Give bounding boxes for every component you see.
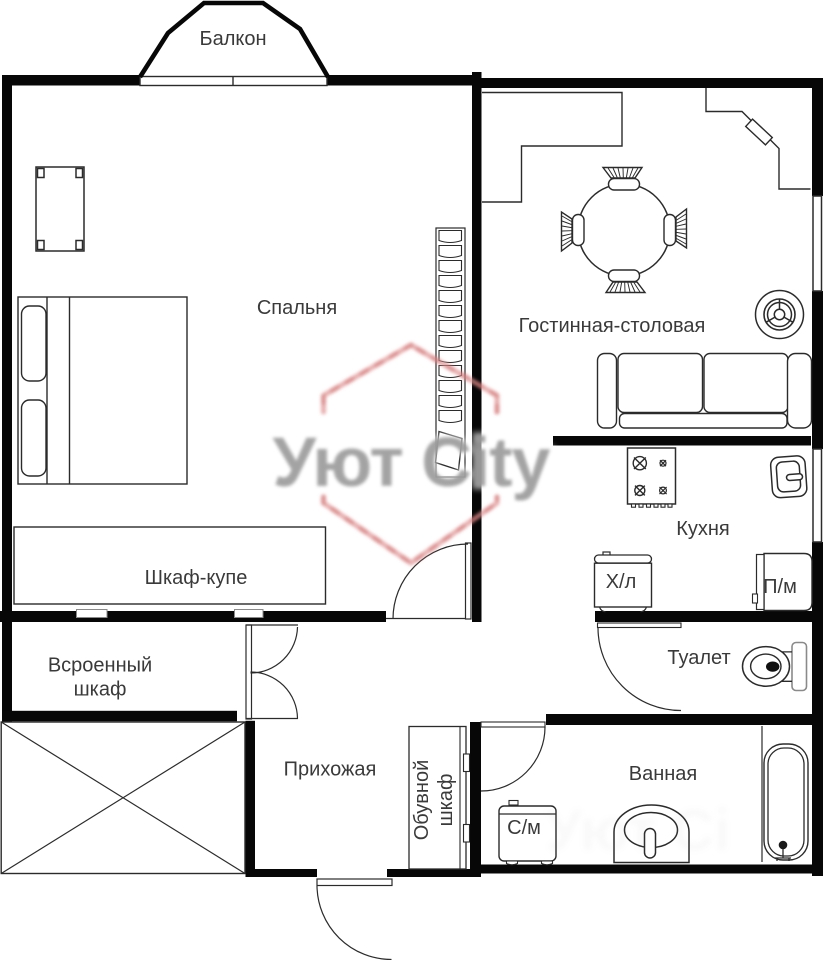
- svg-text:С/м: С/м: [507, 817, 541, 839]
- svg-text:Спальня: Спальня: [257, 297, 337, 319]
- svg-text:Обувной: Обувной: [411, 760, 433, 841]
- svg-text:шкаф: шкаф: [435, 774, 457, 827]
- svg-text:Кухня: Кухня: [676, 518, 730, 540]
- svg-text:Прихожая: Прихожая: [284, 759, 377, 781]
- svg-text:Уют Ci: Уют Ci: [546, 798, 730, 863]
- svg-text:Балкон: Балкон: [199, 28, 266, 50]
- svg-text:Туалет: Туалет: [667, 647, 730, 669]
- svg-text:Х/л: Х/л: [606, 571, 637, 593]
- svg-text:Гостинная-столовая: Гостинная-столовая: [519, 315, 706, 337]
- svg-text:Уют City: Уют City: [273, 423, 551, 501]
- svg-text:Ванная: Ванная: [629, 763, 698, 785]
- svg-text:Всроенный: Всроенный: [48, 655, 152, 677]
- svg-text:Шкаф-купе: Шкаф-купе: [145, 567, 248, 589]
- svg-text:шкаф: шкаф: [74, 679, 127, 701]
- svg-text:П/м: П/м: [763, 576, 797, 598]
